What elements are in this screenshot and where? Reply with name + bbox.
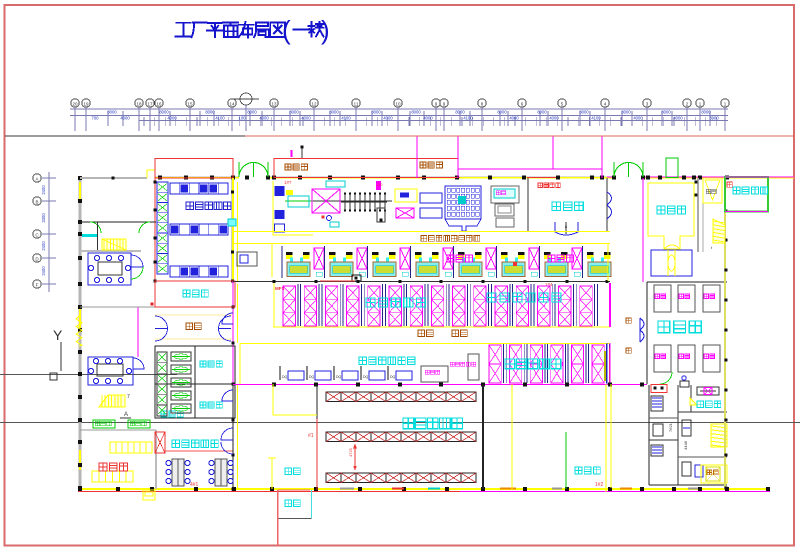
svg-text:4000: 4000 <box>673 115 683 120</box>
svg-text:8000: 8000 <box>701 110 711 115</box>
svg-text:7: 7 <box>127 394 130 400</box>
svg-text:4000: 4000 <box>549 115 559 120</box>
svg-text:8000: 8000 <box>411 110 421 115</box>
svg-text:19: 19 <box>83 101 89 106</box>
svg-text:8000: 8000 <box>579 110 589 115</box>
svg-text:8000: 8000 <box>497 110 507 115</box>
svg-text:GO: GO <box>377 183 383 187</box>
svg-text:16: 16 <box>156 101 162 106</box>
svg-text:11: 11 <box>354 101 359 106</box>
svg-text:4100: 4100 <box>463 115 473 120</box>
svg-text:20: 20 <box>72 101 78 106</box>
svg-text:4000: 4000 <box>633 115 643 120</box>
svg-text:8000: 8000 <box>289 110 299 115</box>
svg-text:2400: 2400 <box>41 241 46 251</box>
svg-text:15: 15 <box>187 101 193 106</box>
svg-text:4#1: 4#1 <box>190 482 199 488</box>
svg-text:4100: 4100 <box>591 115 601 120</box>
svg-text:8000: 8000 <box>159 110 169 115</box>
svg-text:A: A <box>124 412 128 418</box>
svg-text:B: B <box>35 199 38 204</box>
svg-text:8000: 8000 <box>107 110 117 115</box>
svg-text:4100: 4100 <box>215 115 225 120</box>
svg-text:8000: 8000 <box>247 110 257 115</box>
svg-text:8000: 8000 <box>661 110 671 115</box>
svg-text:8000: 8000 <box>455 110 465 115</box>
svg-text:17: 17 <box>147 101 153 106</box>
svg-text:Y: Y <box>53 327 63 343</box>
svg-text:DQ: DQ <box>363 375 369 379</box>
svg-text:13: 13 <box>271 101 277 106</box>
svg-text:2400: 2400 <box>41 266 46 276</box>
svg-text:2400: 2400 <box>41 185 46 195</box>
svg-text:4725: 4725 <box>348 447 353 457</box>
svg-text:DQ: DQ <box>390 375 396 379</box>
svg-text:): ) <box>321 15 330 45</box>
svg-text:7621: 7621 <box>668 422 673 432</box>
svg-text:8000: 8000 <box>205 110 215 115</box>
svg-text:3300: 3300 <box>41 213 46 223</box>
svg-text:1#2: 1#2 <box>595 482 604 488</box>
svg-text:4000: 4000 <box>509 115 519 120</box>
svg-text:3900: 3900 <box>709 115 719 120</box>
svg-text:18: 18 <box>136 101 142 106</box>
svg-text:DQ: DQ <box>336 375 342 379</box>
svg-text:4000: 4000 <box>383 115 393 120</box>
svg-text:4448: 4448 <box>683 440 688 450</box>
svg-text:14: 14 <box>229 101 235 106</box>
svg-text:4000: 4000 <box>167 115 177 120</box>
svg-text:4000: 4000 <box>423 115 433 120</box>
svg-text:8000: 8000 <box>329 110 339 115</box>
svg-text:DQ: DQ <box>309 375 315 379</box>
svg-text:8000: 8000 <box>371 110 381 115</box>
svg-text:700: 700 <box>92 115 100 120</box>
svg-text:1#7: 1#7 <box>284 180 292 185</box>
svg-text:4100: 4100 <box>341 115 351 120</box>
svg-text:F: F <box>36 282 39 287</box>
svg-text:4000: 4000 <box>120 115 130 120</box>
svg-text:12: 12 <box>311 101 317 106</box>
svg-text:(: ( <box>282 15 291 45</box>
svg-text:4000: 4000 <box>301 115 311 120</box>
svg-text:8000: 8000 <box>621 110 631 115</box>
svg-text:100: 100 <box>239 115 247 120</box>
svg-text:#1: #1 <box>308 433 314 439</box>
svg-text:4000: 4000 <box>259 115 269 120</box>
svg-text:DQ: DQ <box>282 375 288 379</box>
svg-text:8000: 8000 <box>537 110 547 115</box>
svg-text:10: 10 <box>395 101 401 106</box>
svg-text:A: A <box>35 176 38 181</box>
